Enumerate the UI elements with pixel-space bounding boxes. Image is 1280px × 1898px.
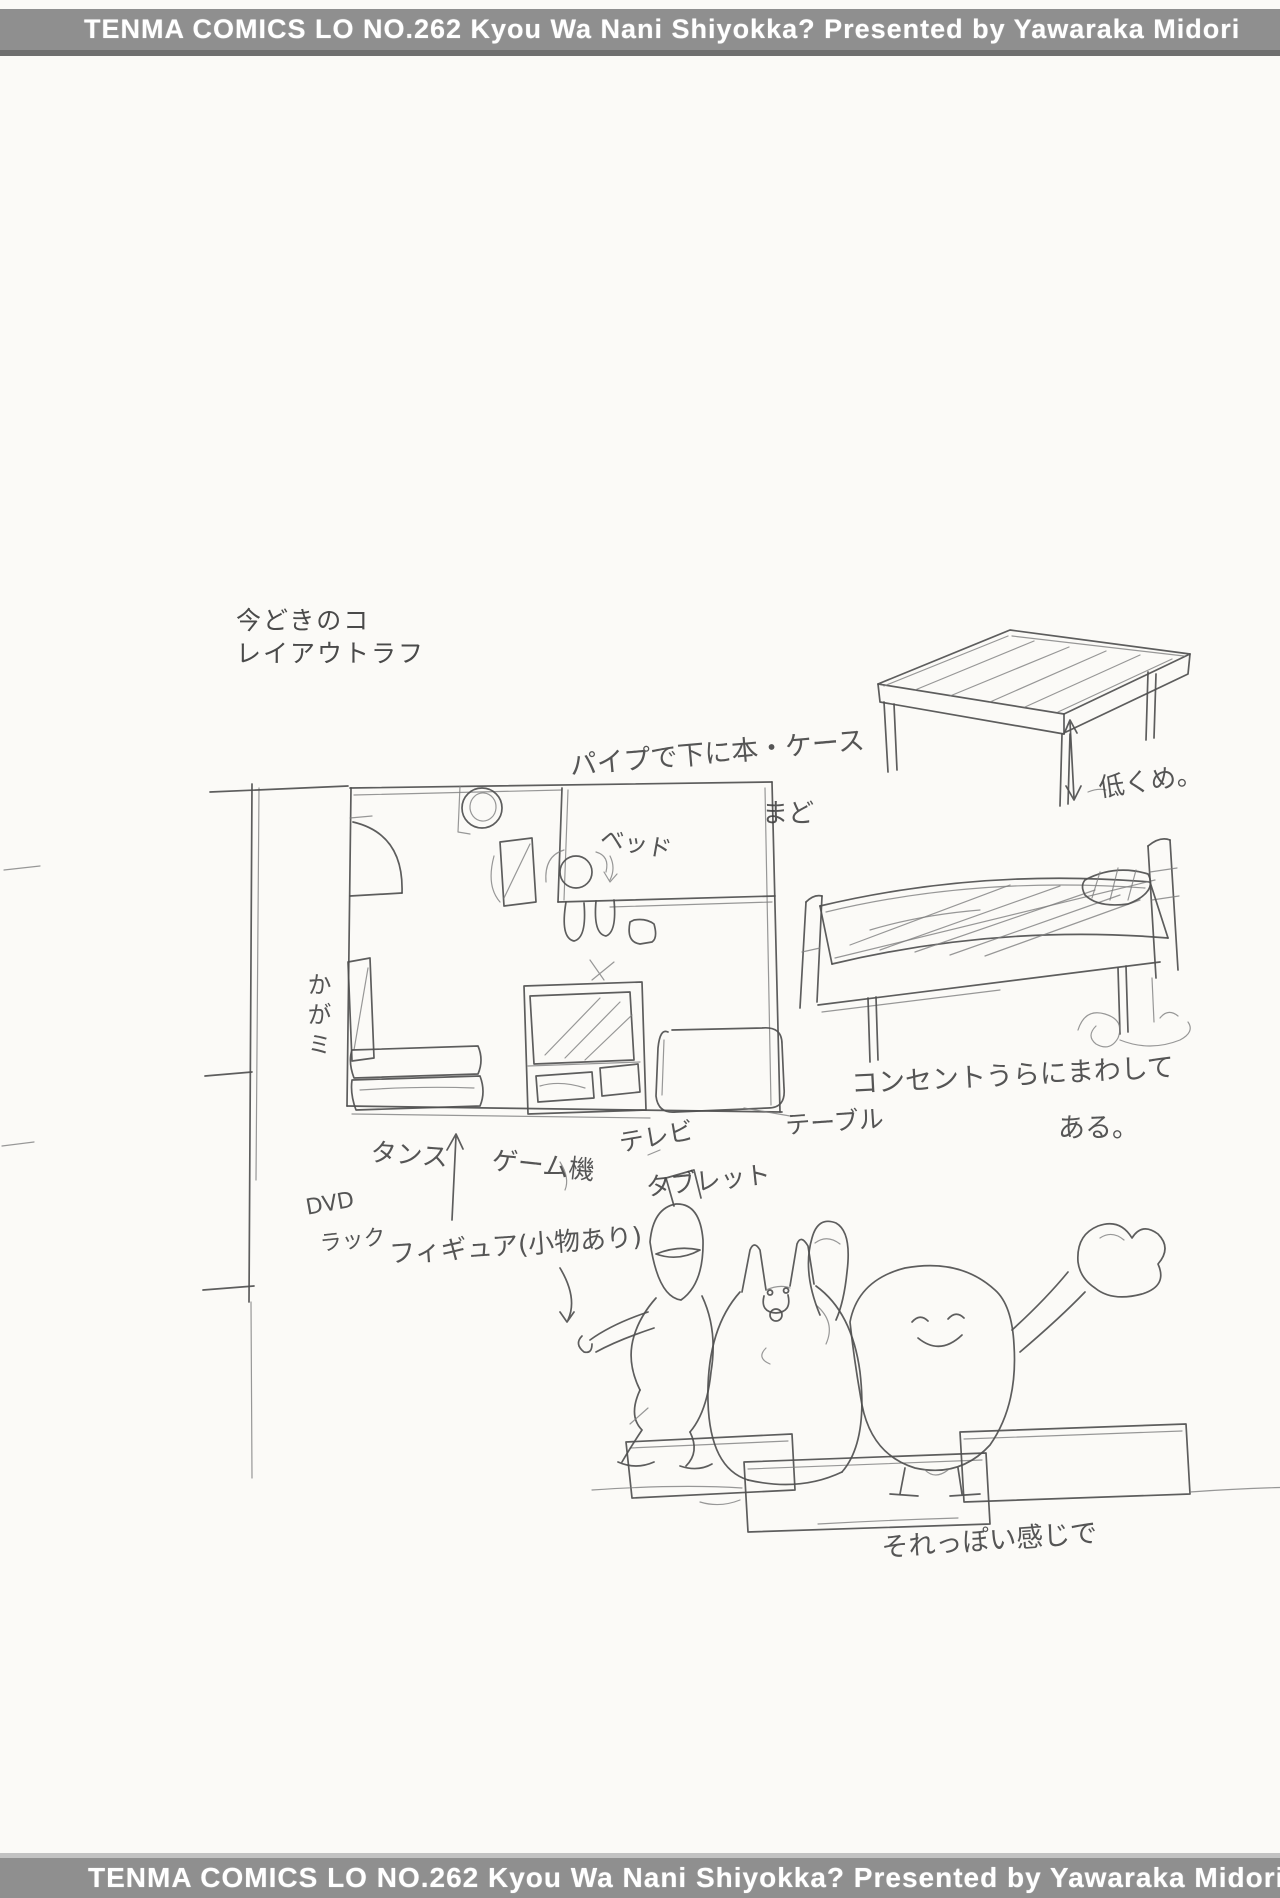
- floor-plan-sketch: [203, 782, 790, 1478]
- bed-sketch: [800, 839, 1190, 1062]
- label-window: まど: [762, 793, 814, 830]
- label-outlet-note-line2: ある。: [1058, 1106, 1139, 1145]
- figures-sketch: [578, 1170, 1280, 1532]
- sketch-drawing: [0, 0, 1280, 1898]
- margin-marks: [2, 866, 40, 1146]
- label-dresser: タンス: [369, 1132, 449, 1174]
- label-table: テーブル: [784, 1099, 885, 1142]
- label-mirror: かがミ: [300, 972, 335, 1062]
- bottom-banner-text: TENMA COMICS LO NO.262 Kyou Wa Nani Shiy…: [88, 1862, 1280, 1894]
- scanned-book-page: TENMA COMICS LO NO.262 Kyou Wa Nani Shiy…: [0, 0, 1280, 1898]
- bottom-banner: TENMA COMICS LO NO.262 Kyou Wa Nani Shiy…: [0, 1853, 1280, 1898]
